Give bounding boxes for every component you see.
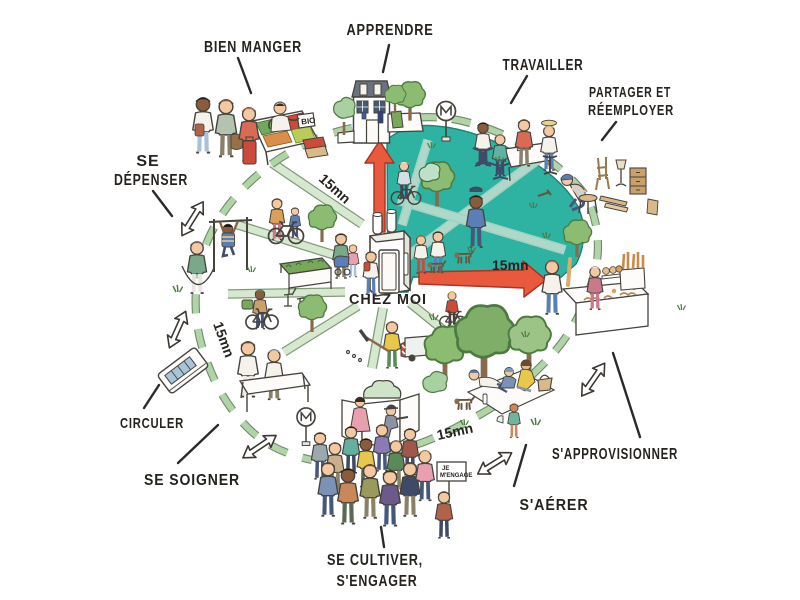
svg-text:APPRENDRE: APPRENDRE (347, 22, 434, 39)
svg-text:DÉPENSER: DÉPENSER (114, 170, 188, 189)
svg-text:JE: JE (442, 466, 449, 472)
svg-text:TRAVAILLER: TRAVAILLER (503, 57, 584, 74)
svg-text:SE SOIGNER: SE SOIGNER (144, 472, 240, 489)
svg-text:RÉEMPLOYER: RÉEMPLOYER (588, 102, 674, 119)
svg-text:PARTAGER ET: PARTAGER ET (589, 84, 671, 101)
svg-text:M'ENGAGE: M'ENGAGE (440, 473, 472, 479)
svg-text:S'APPROVISIONNER: S'APPROVISIONNER (552, 446, 678, 463)
svg-text:SE CULTIVER,: SE CULTIVER, (327, 552, 423, 569)
svg-text:S'AÉRER: S'AÉRER (520, 495, 589, 514)
svg-text:SE: SE (136, 153, 159, 170)
svg-text:15mn: 15mn (492, 257, 529, 273)
svg-text:S'ENGAGER: S'ENGAGER (337, 573, 418, 590)
svg-text:CIRCULER: CIRCULER (120, 415, 184, 432)
svg-text:BIEN MANGER: BIEN MANGER (204, 39, 302, 56)
